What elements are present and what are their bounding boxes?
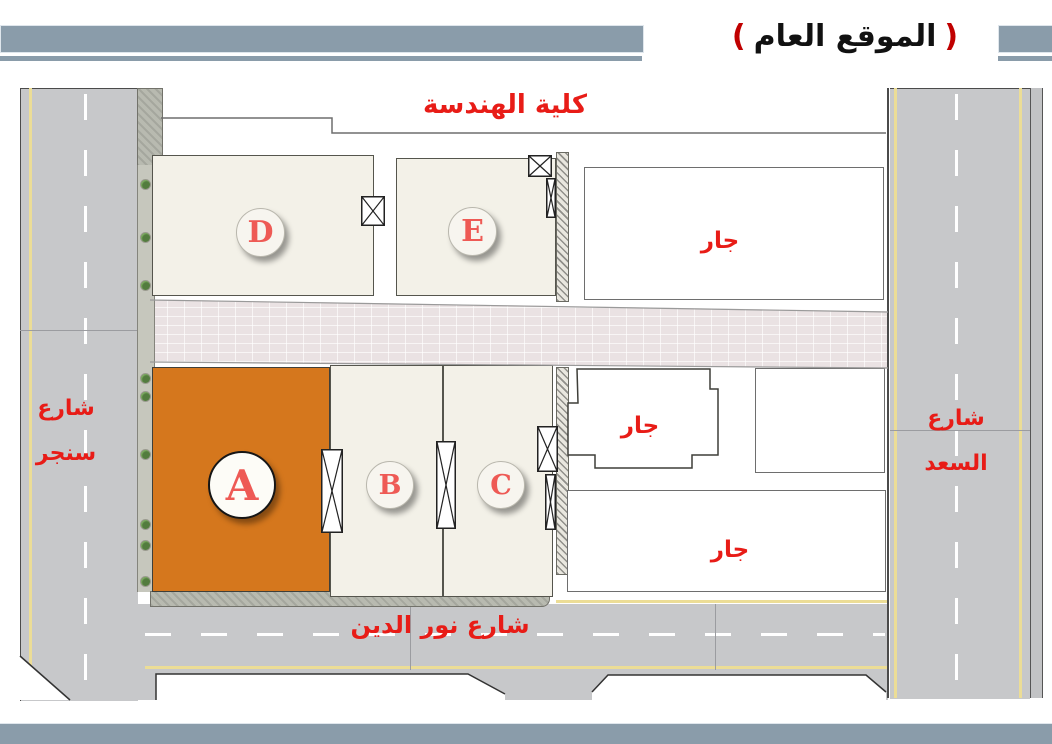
shaft-symbol-d-e [361,196,385,226]
shaft-symbol-c-right [537,426,558,472]
building-e-letter: E [461,214,484,249]
header-bar-left [0,25,644,53]
street-right-yellow-line-right [1019,88,1022,698]
tree-icon [141,374,150,383]
street-right-road [890,88,1030,699]
hatch-strip-upper [556,152,569,302]
shaft-symbol-c-right-narrow [545,474,556,530]
neighbor-middle-label: جار [595,413,685,439]
street-bottom-yellow-bottom [145,666,888,669]
tree-icon [141,281,150,290]
street-right-center-dashes [955,94,958,694]
title-text: الموقع العام [754,19,937,54]
street-right-label-line2: السعد [916,441,996,486]
tree-icon [141,541,150,550]
neighbor-bottom-label: جار [650,537,810,563]
shaft-symbol-b-c [436,441,456,529]
header-bar-left-underline [0,56,642,61]
neighbor-top-label: جار [600,228,840,254]
footer-bar [0,723,1052,744]
shaft-symbol-e-right-narrow [546,178,556,218]
neighbor-plot-right-rect [755,368,885,473]
street-bottom-label: شارع نور الدين [320,611,560,639]
tree-icon [141,520,150,529]
page-title: ( الموقع العام ) [690,19,1000,54]
faculty-label: كلية الهندسة [390,90,620,120]
tree-icon [141,180,150,189]
building-c-badge: C [477,461,525,509]
building-c-letter: C [490,470,512,501]
street-left-label: شارع سنجر [28,386,104,476]
street-bottom-seam-2 [715,604,716,670]
building-d-letter: D [247,215,273,250]
tree-icon [141,392,150,401]
street-right-label-line1: شارع [916,396,996,441]
street-left-label-line1: شارع [28,386,104,431]
street-right-label: شارع السعد [916,396,996,486]
header-bar-right [998,25,1052,53]
street-right-yellow-line-left [894,88,897,698]
internal-paved-strip [150,298,888,368]
shaft-symbol-a-b [321,449,343,533]
building-b-badge: B [366,461,414,509]
header-bar-right-underline [998,56,1052,61]
building-a-letter: A [226,461,259,510]
street-bottom-yellow-top [556,600,888,603]
tree-icon [141,450,150,459]
site-plan-slide: ( الموقع العام ) [0,0,1052,744]
street-left-seam [20,330,137,331]
street-right-shoulder [1030,88,1043,698]
title-paren-open: ( [732,19,746,54]
plot-boundary-line [161,118,886,133]
building-d-badge: D [236,208,285,257]
building-b-letter: B [379,470,402,501]
street-left-label-line2: سنجر [28,431,104,476]
tree-icon [141,577,150,586]
tree-icon [141,233,150,242]
shaft-symbol-e-topright [528,155,552,177]
title-paren-close: ) [944,19,958,54]
building-a-badge: A [208,451,276,519]
building-e-badge: E [448,207,497,256]
